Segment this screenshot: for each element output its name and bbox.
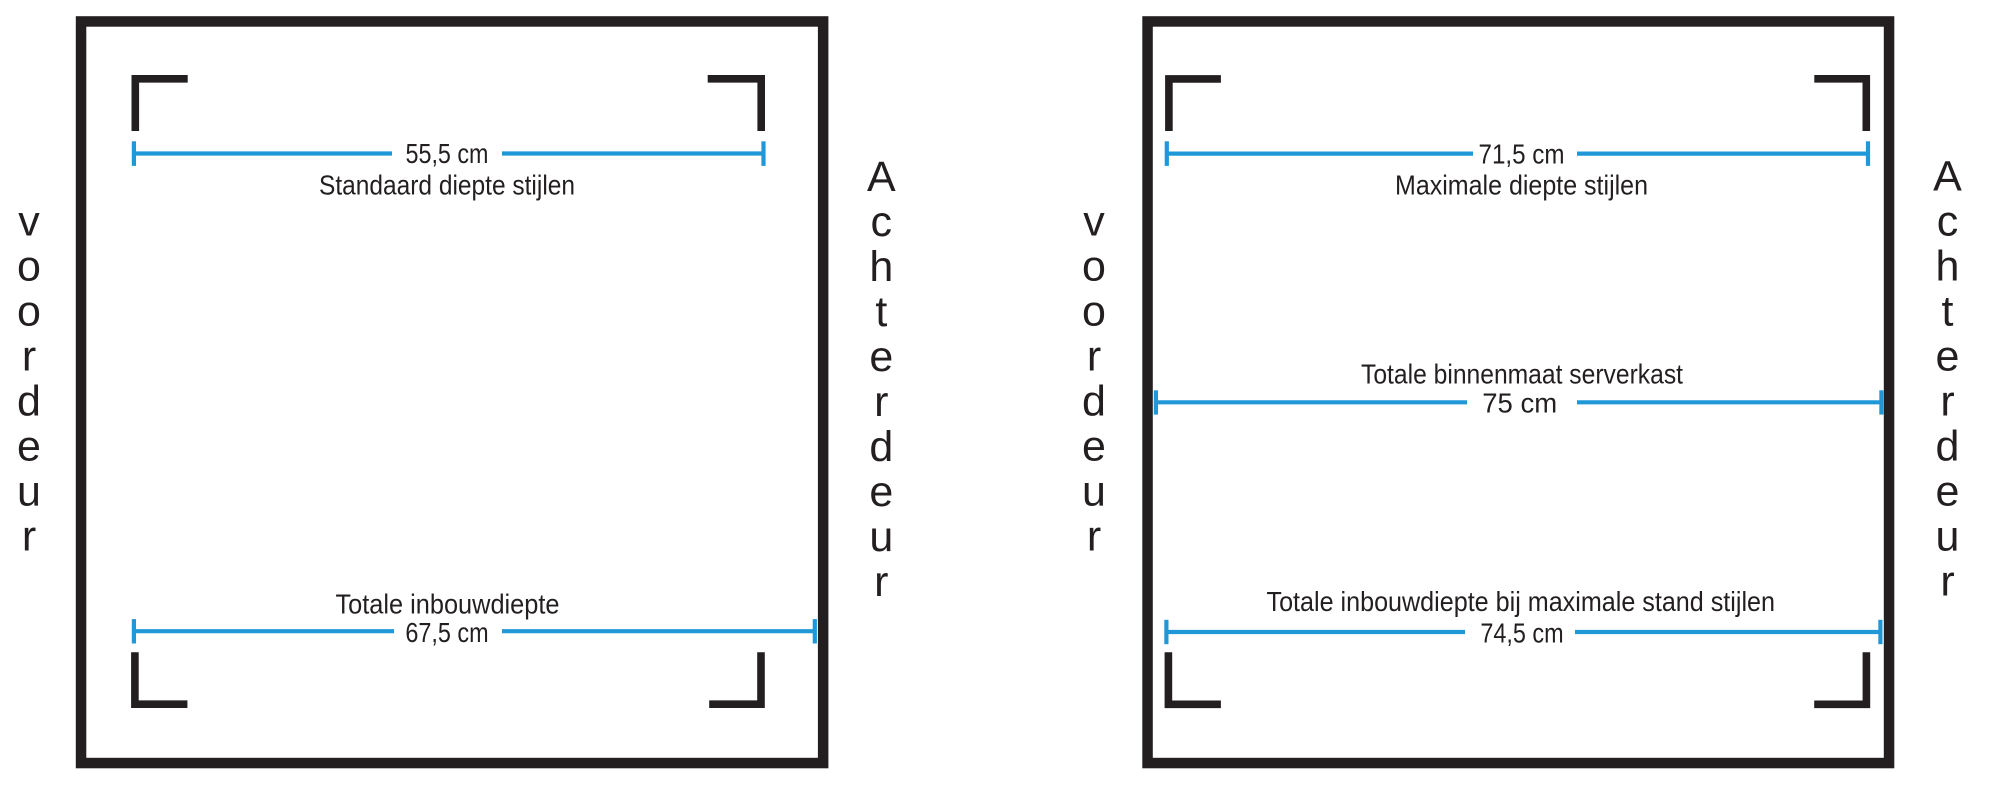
svg-text:Totale binnenmaat serverkast: Totale binnenmaat serverkast: [1361, 359, 1683, 390]
svg-text:67,5 cm: 67,5 cm: [405, 617, 488, 648]
svg-text:voordeur: voordeur: [1082, 198, 1106, 561]
svg-text:74,5 cm: 74,5 cm: [1480, 618, 1563, 649]
svg-text:Totale inbouwdiepte bij maxima: Totale inbouwdiepte bij maximale stand s…: [1267, 586, 1776, 617]
svg-text:voordeur: voordeur: [17, 198, 41, 561]
svg-text:75 cm: 75 cm: [1482, 388, 1557, 419]
svg-text:Achterdeur: Achterdeur: [1933, 152, 1962, 605]
svg-text:Achterdeur: Achterdeur: [867, 153, 896, 606]
svg-text:71,5 cm: 71,5 cm: [1479, 139, 1565, 170]
svg-text:Totale inbouwdiepte: Totale inbouwdiepte: [336, 588, 560, 619]
svg-text:Standaard diepte stijlen: Standaard diepte stijlen: [319, 170, 575, 201]
svg-text:55,5 cm: 55,5 cm: [406, 138, 489, 169]
svg-text:Maximale diepte stijlen: Maximale diepte stijlen: [1395, 169, 1648, 200]
